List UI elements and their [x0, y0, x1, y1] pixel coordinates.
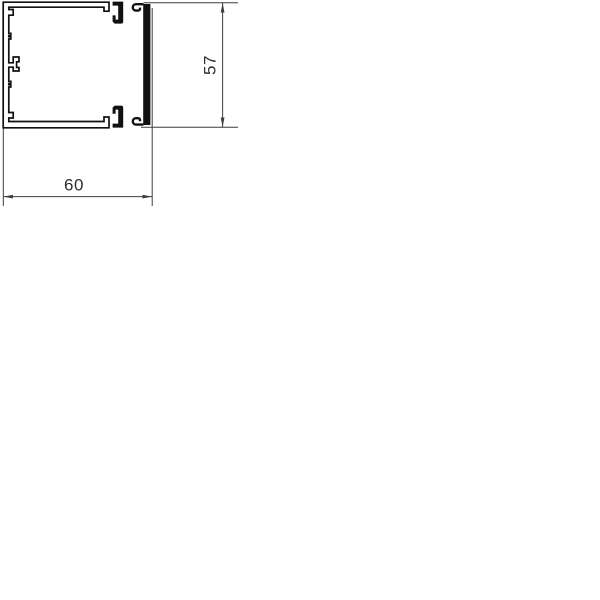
- arrowhead-right-icon: [143, 195, 152, 199]
- trunking-dimension-drawing: 57 60: [0, 0, 600, 600]
- height-dim-label: 57: [201, 55, 220, 75]
- height-dimension: 57: [141, 3, 238, 128]
- duct-body-profile: [3, 2, 109, 128]
- arrowhead-left-icon: [4, 195, 13, 199]
- body-bottom-snap-hook-icon: [113, 106, 124, 128]
- cover-top-hook-icon: [133, 4, 144, 10]
- body-top-snap-hook-icon: [113, 2, 124, 24]
- width-dimension: 60: [3, 8, 152, 206]
- cover-profile: [143, 4, 150, 125]
- width-dim-label: 60: [64, 176, 84, 195]
- technical-drawing-canvas: 57 60: [0, 0, 600, 600]
- arrowhead-up-icon: [221, 3, 225, 13]
- cover-bottom-hook-icon: [133, 118, 144, 124]
- arrowhead-down-icon: [221, 118, 225, 128]
